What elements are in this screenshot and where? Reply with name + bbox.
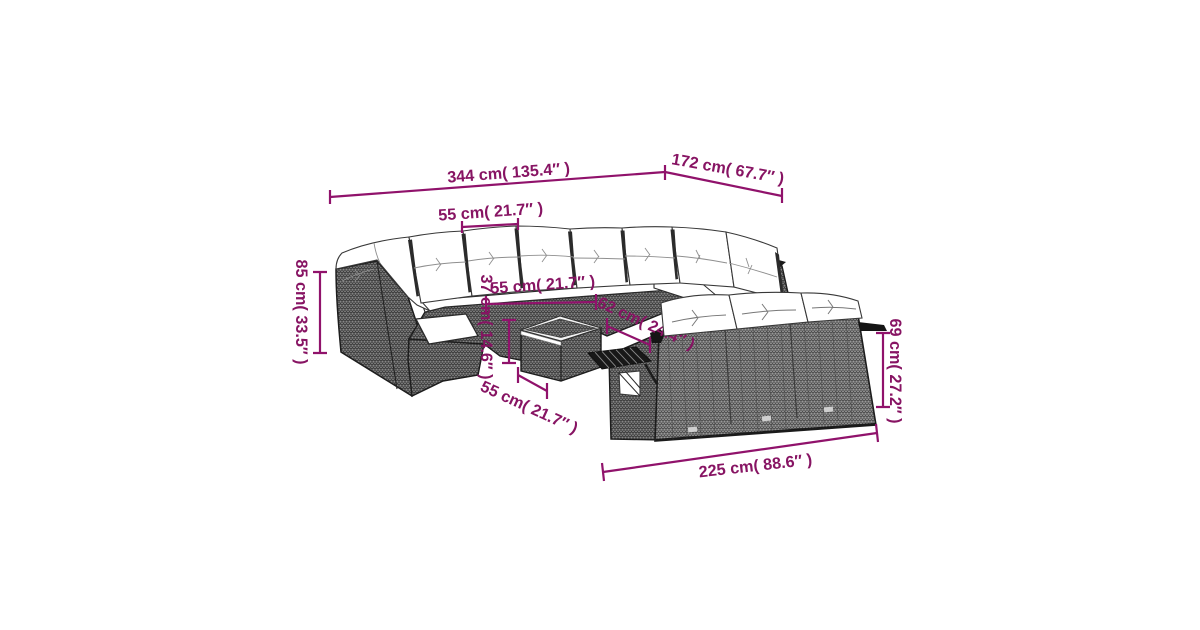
svg-text:85 cm( 33.5″ ): 85 cm( 33.5″ ) <box>292 260 310 365</box>
svg-text:69 cm( 27.2″ ): 69 cm( 27.2″ ) <box>886 319 904 424</box>
